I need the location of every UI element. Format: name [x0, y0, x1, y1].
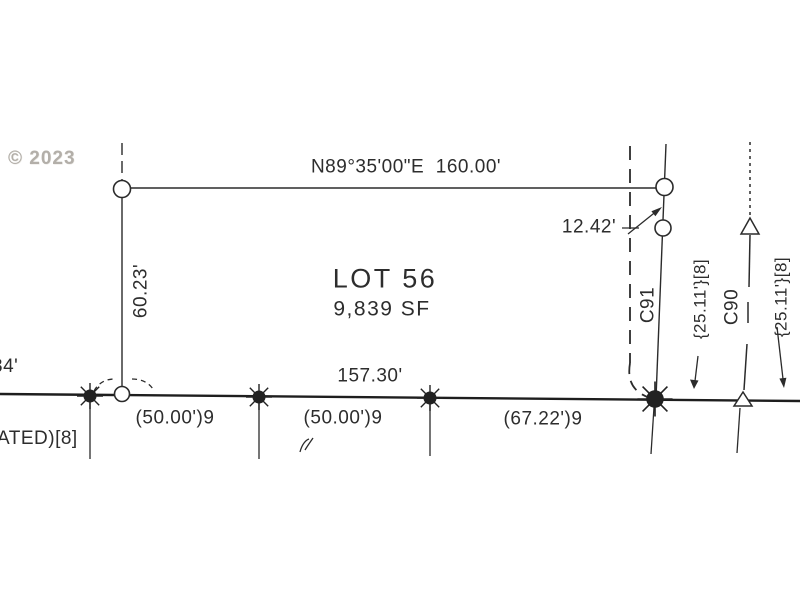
curve-c90-dim-label: {25.11'}[8] [773, 257, 790, 337]
monument-starburst-4 [637, 381, 672, 416]
east-jog-distance-label: 12.42' [562, 218, 616, 237]
curve-tick-arc-right [132, 379, 153, 389]
curve-dim-leader-a [695, 356, 698, 381]
monument-drop-line-diagonal [651, 407, 654, 454]
lot-area: 9,839 SF [333, 299, 430, 320]
lot-title: LOT 56 [333, 266, 438, 293]
c90-arrow-up-triangle [741, 218, 759, 234]
monument-circle-sw [115, 387, 130, 402]
monument-starburst-2 [246, 384, 272, 410]
monument-starburst-1 [77, 383, 103, 409]
edge-label-left-top: 34' [0, 357, 18, 376]
c90-drop-line [737, 408, 740, 453]
starburst-center [84, 390, 97, 403]
west-distance-label: 60.23' [132, 264, 151, 318]
copyright-watermark: © 2023 [8, 149, 76, 168]
curve-c91-dim-label: {25.11'}[8] [692, 259, 709, 339]
monument-circle-ne-upper [656, 179, 673, 196]
frontage-segment-1-label: (50.00')9 [136, 409, 215, 428]
c90-centerline-low [744, 344, 747, 390]
monument-starburst-3 [417, 385, 443, 411]
north-bearing-distance-label: N89°35'00"E 160.00' [311, 158, 501, 177]
curve-c91-label: C91 [639, 287, 658, 323]
curve-dim-arrowhead-b [779, 378, 786, 388]
starburst-center [424, 392, 437, 405]
monument-circle-nw [114, 181, 131, 198]
curve-c91-dashed-curve [629, 363, 650, 398]
plat-map: © 2023 N89°35'00"E 160.00' 12.42' LOT 56… [0, 0, 800, 599]
frontage-segment-3-label: (67.22')9 [504, 410, 583, 429]
c90-arrow-down-triangle [734, 392, 752, 406]
starburst-center [253, 391, 266, 404]
monument-circle-ne-lower [655, 220, 671, 236]
dim-12-42-arrowhead [651, 207, 662, 216]
curve-c90-label: C90 [723, 289, 742, 325]
curve-dim-arrowhead-a [690, 380, 699, 390]
handwriting-mark [300, 438, 313, 452]
c90-centerline-mid [749, 235, 750, 287]
south-distance-label: 157.30' [337, 367, 402, 386]
starburst-center [646, 390, 664, 408]
edge-label-left-bottom: ATED)[8] [0, 429, 78, 448]
frontage-segment-2-label: (50.00')9 [304, 409, 383, 428]
